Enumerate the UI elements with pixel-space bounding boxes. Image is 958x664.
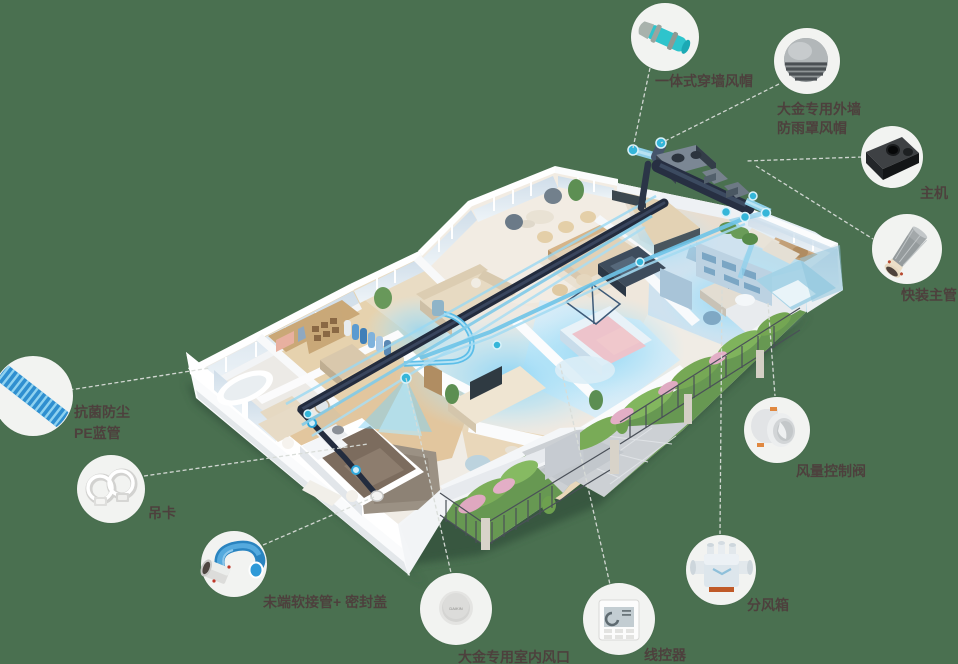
svg-text:大金专用外墙: 大金专用外墙 [777, 101, 861, 117]
svg-text:线控器: 线控器 [644, 647, 687, 663]
svg-text:大金专用室内风口: 大金专用室内风口 [458, 649, 570, 664]
svg-text:DAIKIN: DAIKIN [449, 606, 462, 611]
svg-text:吊卡: 吊卡 [148, 505, 176, 521]
svg-text:PE蓝管: PE蓝管 [74, 425, 121, 441]
svg-text:一体式穿墙风帽: 一体式穿墙风帽 [655, 73, 753, 89]
svg-text:风量控制阀: 风量控制阀 [796, 463, 866, 479]
svg-text:快装主管: 快装主管 [901, 287, 957, 303]
svg-text:分风箱: 分风箱 [747, 597, 789, 613]
svg-text:防雨罩风帽: 防雨罩风帽 [777, 120, 847, 136]
svg-text:主机: 主机 [920, 185, 948, 201]
svg-text:抗菌防尘: 抗菌防尘 [74, 404, 130, 420]
svg-text:未端软接管+ 密封盖: 未端软接管+ 密封盖 [263, 594, 387, 610]
